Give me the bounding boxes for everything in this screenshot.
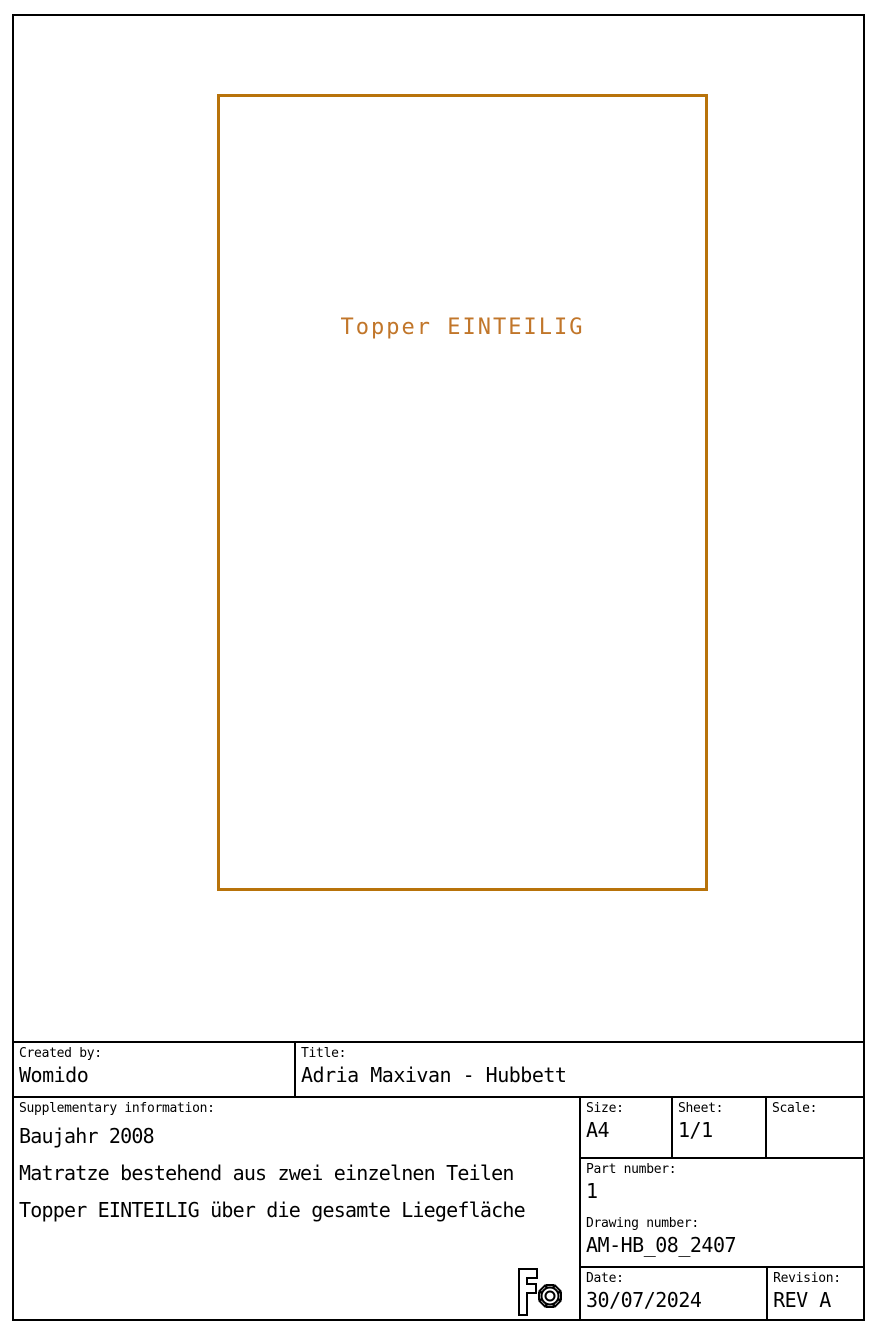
sheet-cell: Sheet: 1/1: [673, 1098, 767, 1157]
title-block-row-2: Supplementary information: Baujahr 2008 …: [14, 1098, 863, 1319]
sheet-value: 1/1: [673, 1116, 765, 1142]
revision-label: Revision:: [768, 1268, 863, 1286]
revision-value: REV A: [768, 1286, 863, 1312]
scale-value: [767, 1116, 863, 1118]
title-cell: Title: Adria Maxivan - Hubbett: [296, 1043, 863, 1096]
created-by-label: Created by:: [14, 1043, 294, 1061]
date-revision-row: Date: 30/07/2024 Revision: REV A: [581, 1268, 863, 1319]
part-number-value: 1: [581, 1177, 863, 1203]
supplementary-info-cell: Supplementary information: Baujahr 2008 …: [14, 1098, 581, 1319]
drawing-number-value: AM-HB_08_2407: [581, 1231, 863, 1257]
part-number-label: Part number:: [581, 1159, 863, 1177]
title-block: Created by: Womido Title: Adria Maxivan …: [12, 1041, 865, 1321]
scale-cell: Scale:: [767, 1098, 863, 1157]
drawing-number-label: Drawing number:: [581, 1213, 863, 1231]
size-value: A4: [581, 1116, 671, 1142]
supplementary-info-label: Supplementary information:: [14, 1098, 579, 1116]
supplementary-line-2: Matratze bestehend aus zwei einzelnen Te…: [14, 1155, 579, 1192]
date-label: Date:: [581, 1268, 766, 1286]
drawing-sheet: Topper EINTEILIG Created by: Womido Titl…: [0, 0, 876, 1335]
title-value: Adria Maxivan - Hubbett: [296, 1061, 863, 1087]
title-block-row-1: Created by: Womido Title: Adria Maxivan …: [14, 1043, 863, 1098]
part-drawing-number-cell: Part number: 1 Drawing number: AM-HB_08_…: [581, 1159, 863, 1268]
scale-label: Scale:: [767, 1098, 863, 1116]
date-cell: Date: 30/07/2024: [581, 1268, 768, 1319]
part-outline-rectangle: Topper EINTEILIG: [217, 94, 708, 891]
title-label: Title:: [296, 1043, 863, 1061]
sheet-label: Sheet:: [673, 1098, 765, 1116]
size-sheet-scale-row: Size: A4 Sheet: 1/1 Scale:: [581, 1098, 863, 1159]
title-block-right-column: Size: A4 Sheet: 1/1 Scale: Part number: …: [581, 1098, 863, 1319]
size-cell: Size: A4: [581, 1098, 673, 1157]
revision-cell: Revision: REV A: [768, 1268, 863, 1319]
created-by-value: Womido: [14, 1061, 294, 1087]
part-label: Topper EINTEILIG: [220, 315, 705, 340]
supplementary-line-3: Topper EINTEILIG über die gesamte Liegef…: [14, 1192, 579, 1229]
created-by-cell: Created by: Womido: [14, 1043, 296, 1096]
date-value: 30/07/2024: [581, 1286, 766, 1312]
supplementary-line-1: Baujahr 2008: [14, 1118, 579, 1155]
size-label: Size:: [581, 1098, 671, 1116]
gear-logo-icon: [513, 1266, 577, 1318]
